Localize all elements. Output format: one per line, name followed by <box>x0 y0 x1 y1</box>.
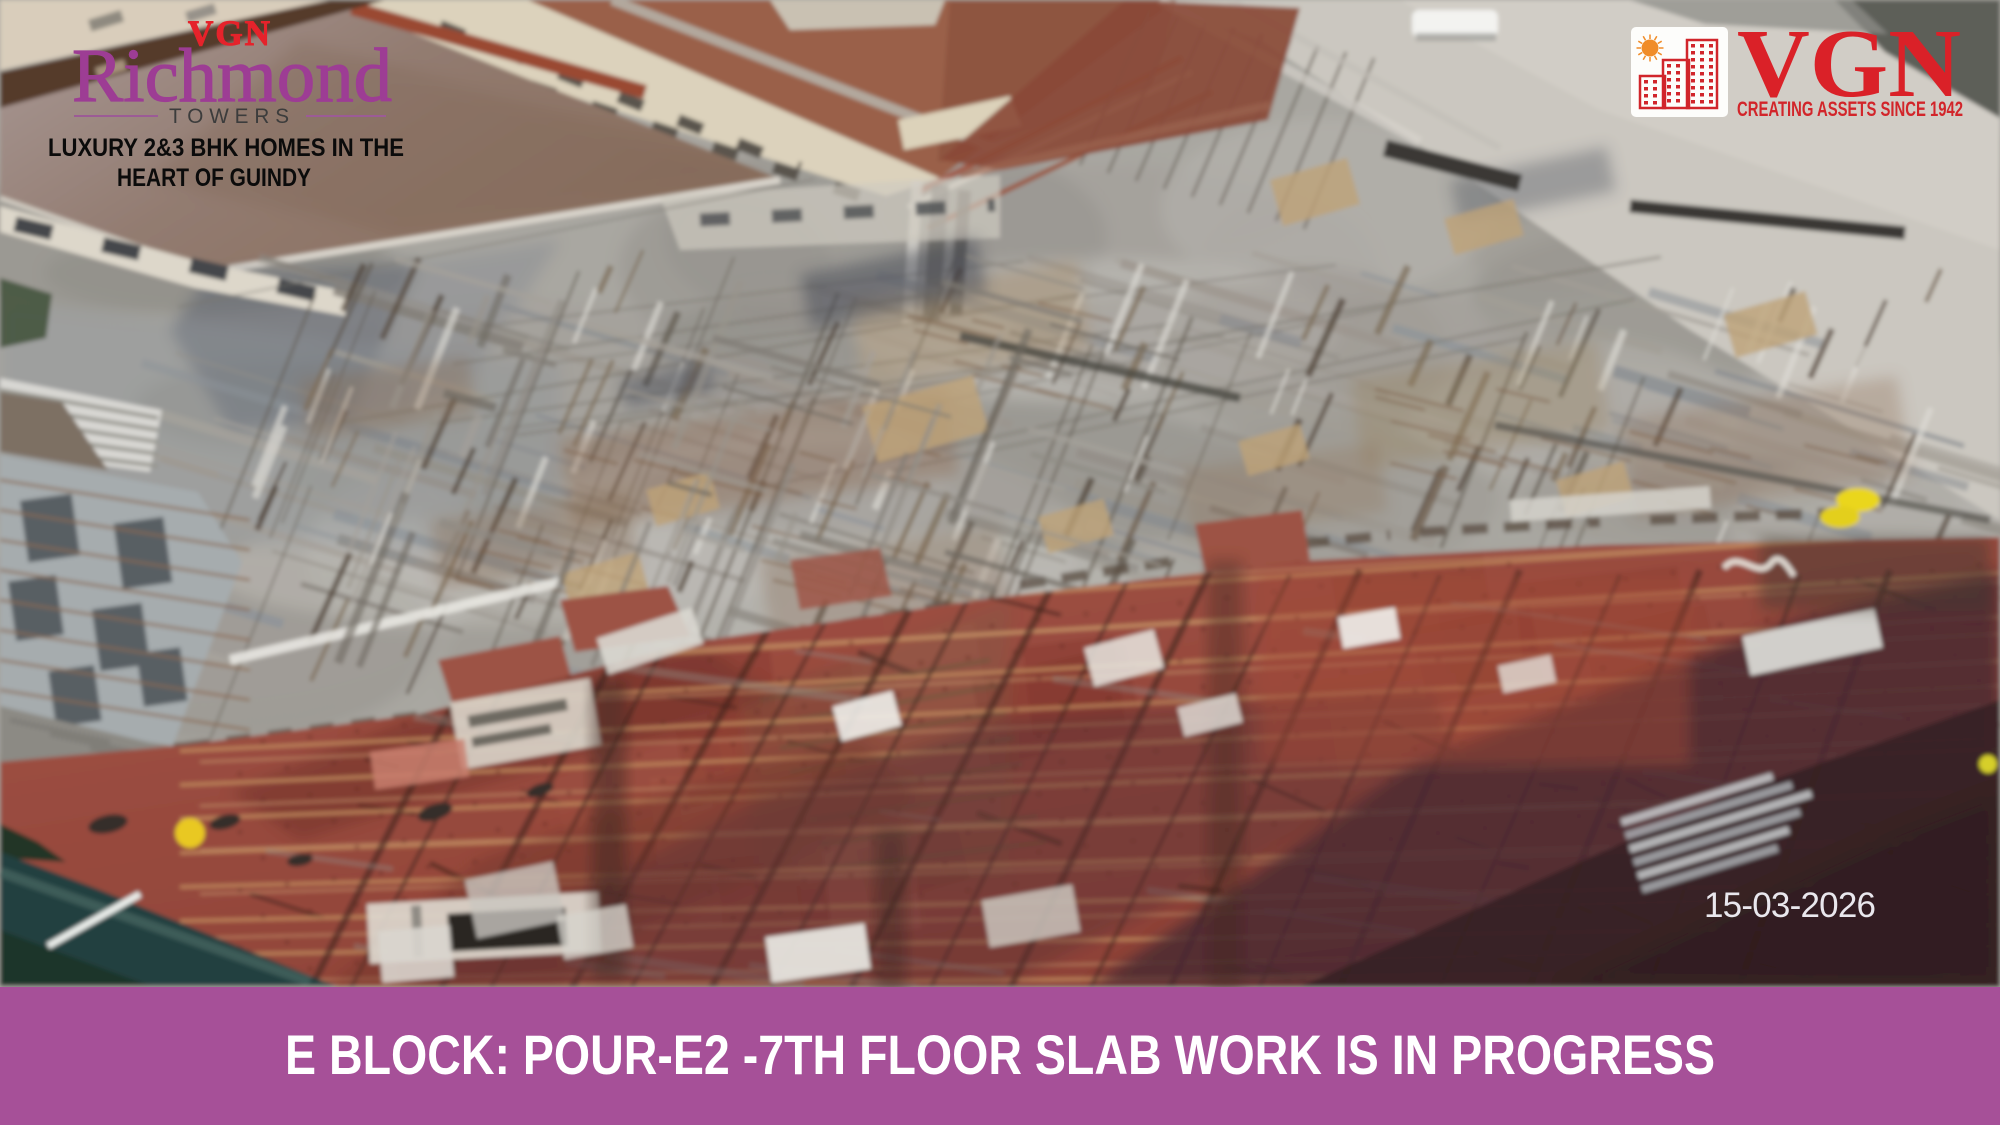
svg-text:E BLOCK: POUR-E2 -7TH FLOOR SL: E BLOCK: POUR-E2 -7TH FLOOR SLAB WORK IS… <box>285 1023 1715 1086</box>
svg-text:LUXURY 2&3 BHK HOMES IN THE: LUXURY 2&3 BHK HOMES IN THE <box>48 134 404 162</box>
svg-text:15-03-2026: 15-03-2026 <box>1704 886 1876 925</box>
svg-text:TOWERS: TOWERS <box>169 105 295 128</box>
svg-text:CREATING ASSETS SINCE 1942: CREATING ASSETS SINCE 1942 <box>1737 98 1963 121</box>
svg-text:HEART OF GUINDY: HEART OF GUINDY <box>117 164 311 192</box>
